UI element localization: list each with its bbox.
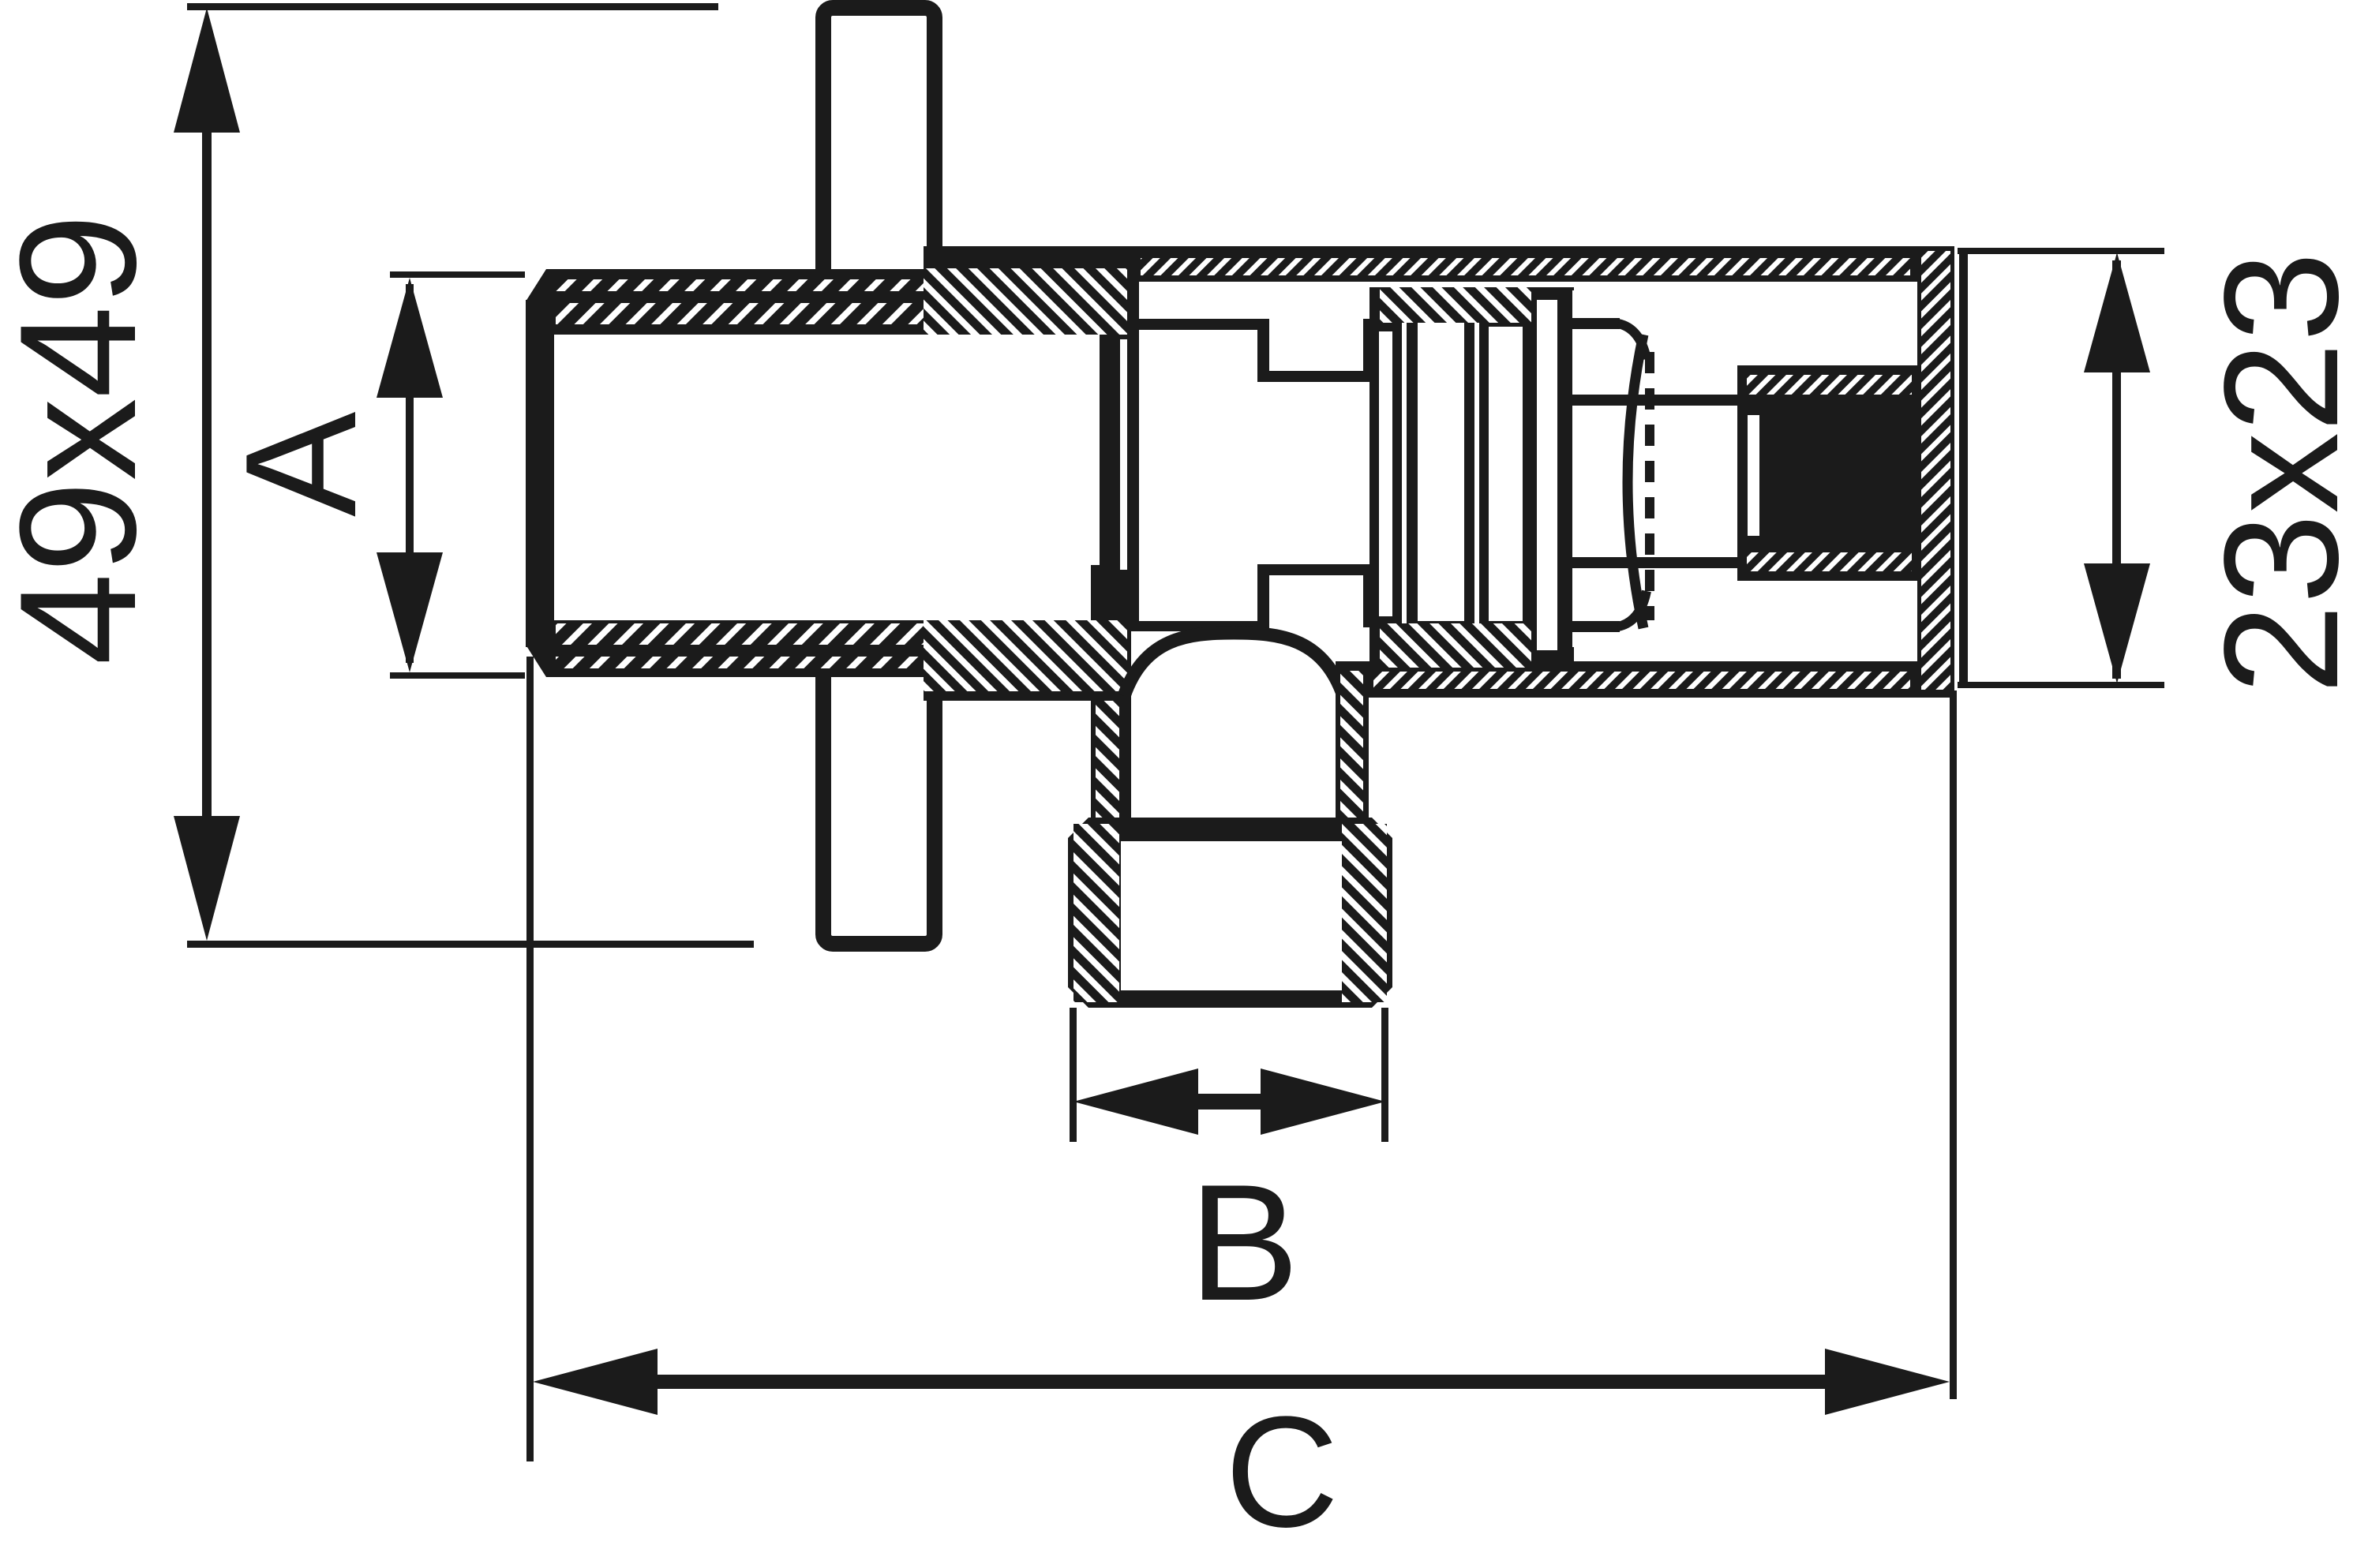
svg-text:A: A bbox=[213, 411, 389, 517]
svg-text:C: C bbox=[1225, 1384, 1339, 1560]
svg-text:B: B bbox=[1189, 1150, 1299, 1335]
svg-text:23x23: 23x23 bbox=[2190, 252, 2368, 694]
svg-text:49x49: 49x49 bbox=[0, 214, 170, 665]
